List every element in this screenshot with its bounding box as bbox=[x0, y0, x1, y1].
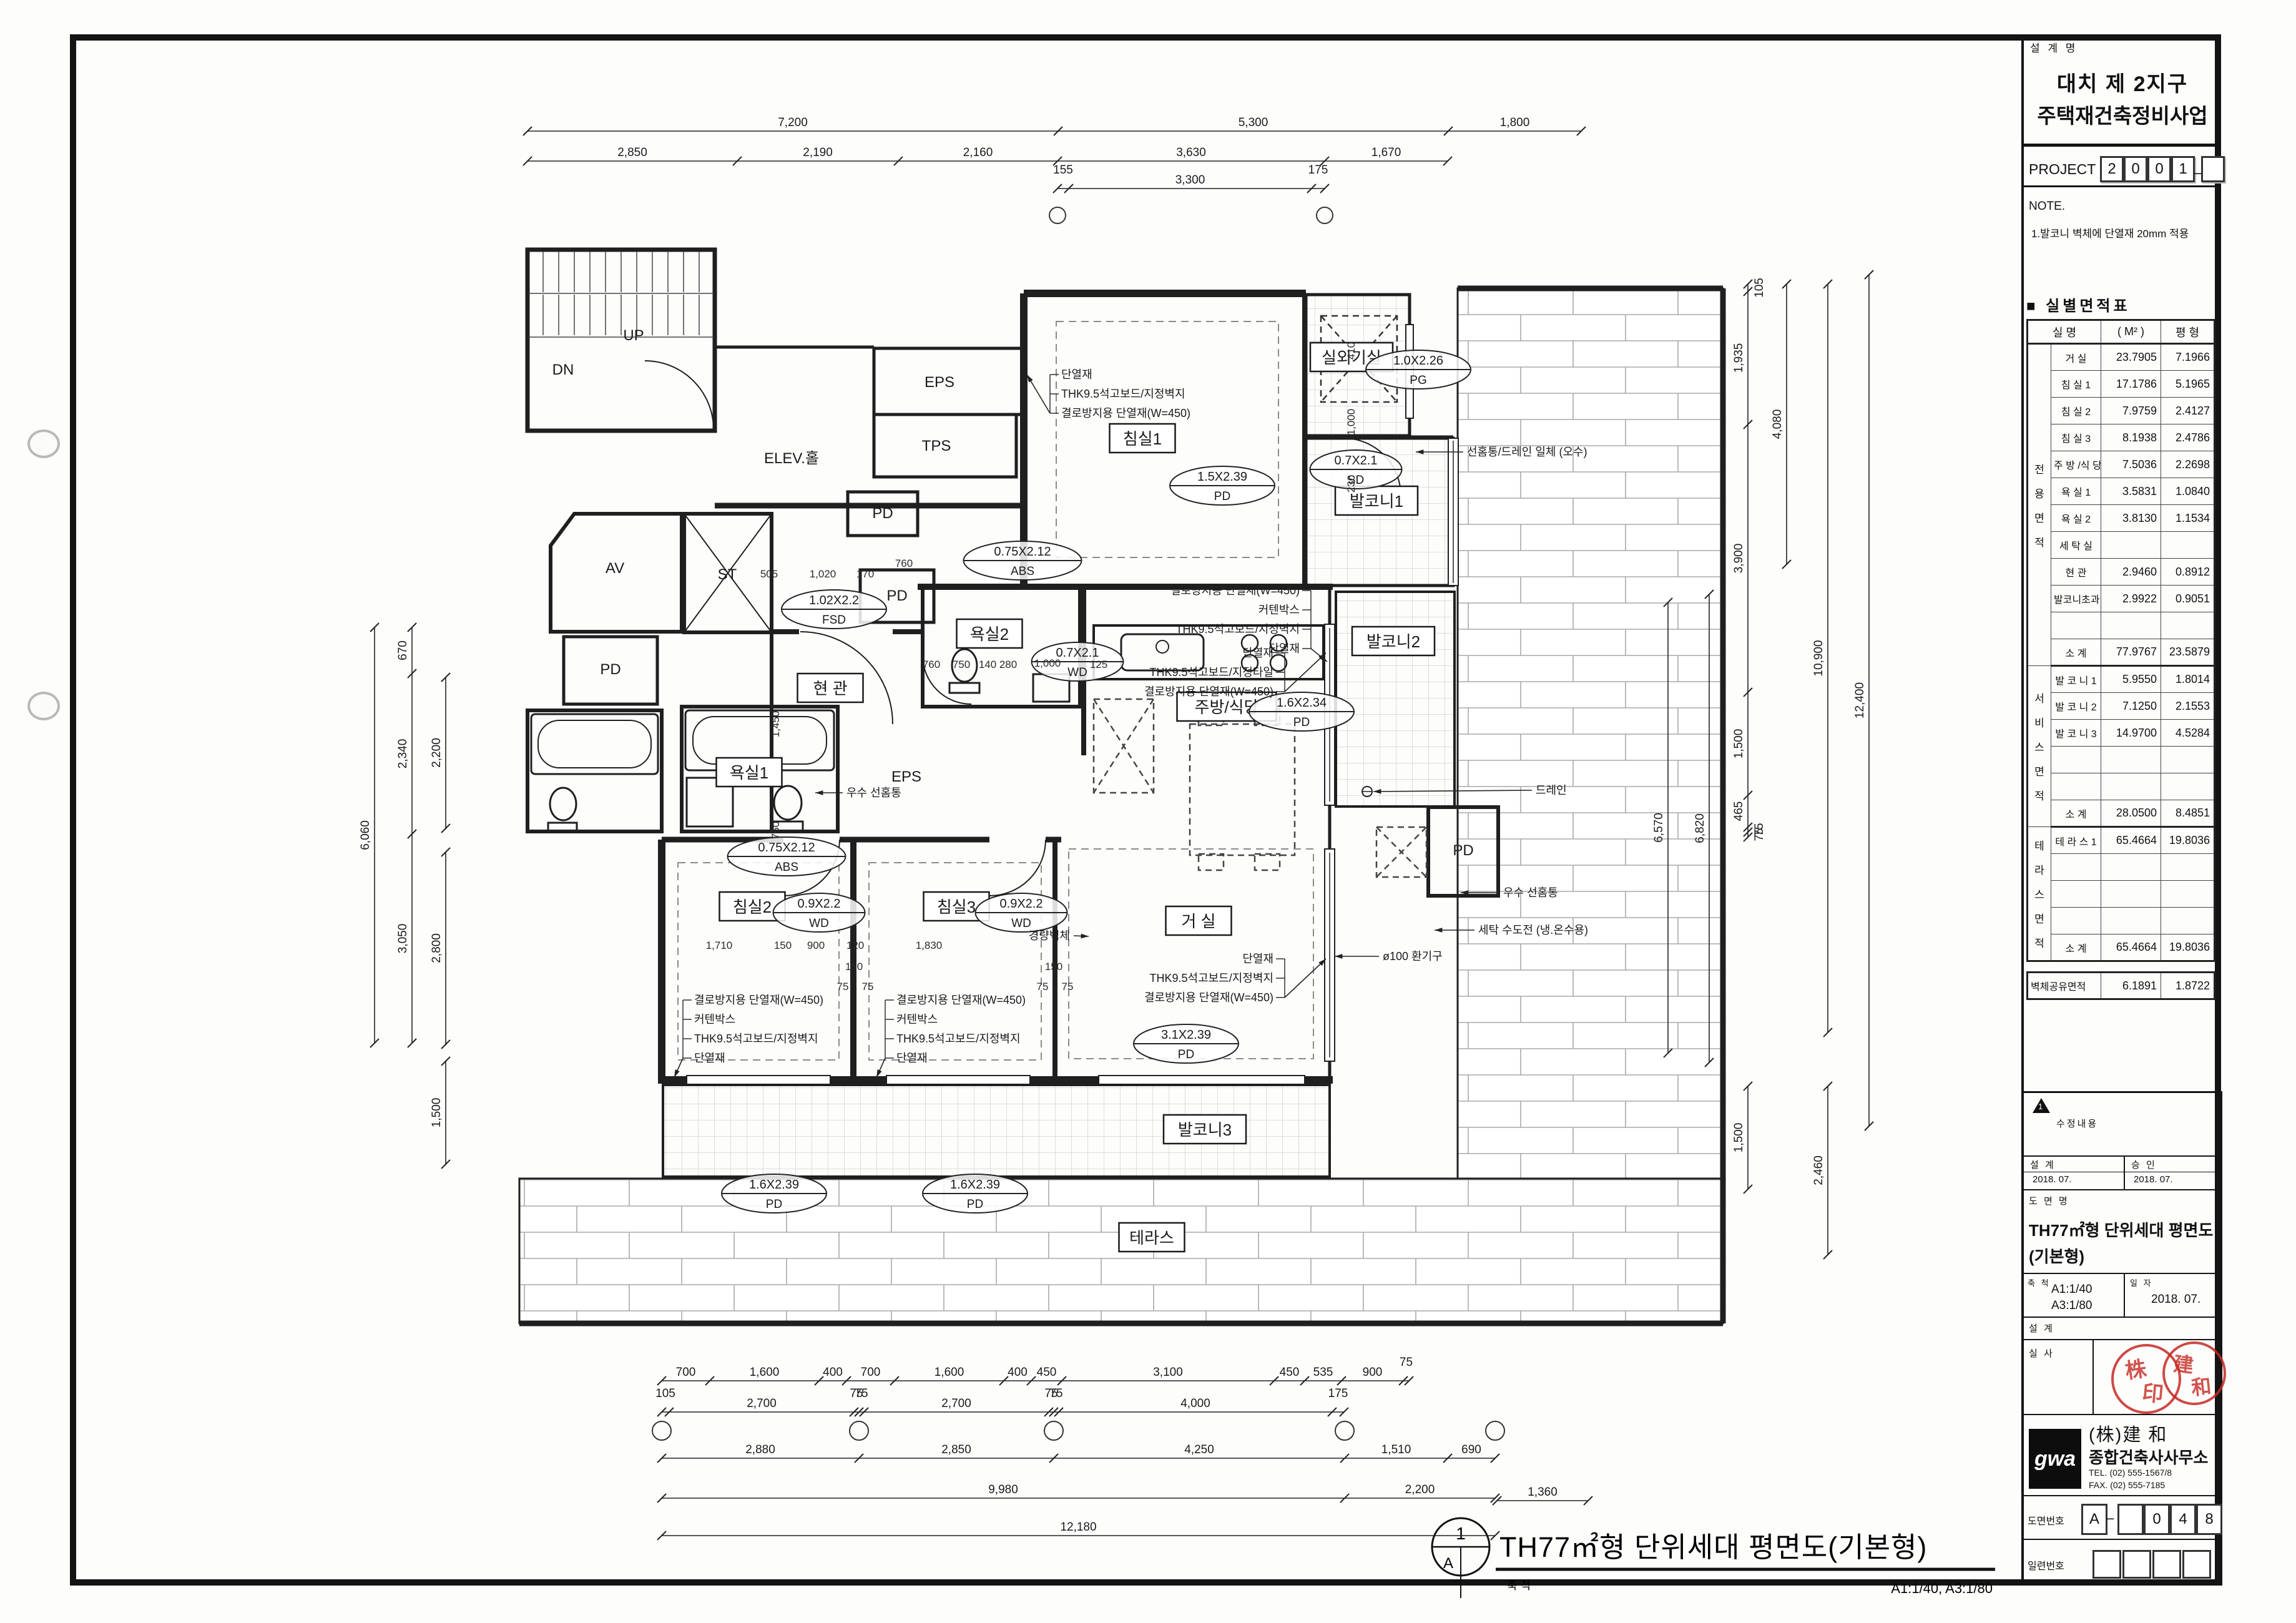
area-pyeong-cell: 0.9051 bbox=[2161, 586, 2215, 612]
scale-a3: A3:1/80 bbox=[2051, 1299, 2092, 1313]
area-m2-cell bbox=[2101, 532, 2161, 559]
dim-value: 1,500 bbox=[1732, 729, 1745, 759]
area-m2-cell: 7.5036 bbox=[2101, 451, 2161, 478]
opening-code: FSD bbox=[822, 614, 846, 627]
company-tel: TEL. (02) 555-1567/8 bbox=[2089, 1468, 2172, 1478]
dim-value: 4,080 bbox=[1771, 409, 1784, 439]
opening-size: 1.6X2.39 bbox=[950, 1178, 1000, 1192]
area-table-title: ■ 실별면적표 bbox=[2026, 293, 2217, 315]
company-logo: gwa bbox=[2029, 1429, 2081, 1489]
annotation-text: 결로방지용 단열재(W=450) bbox=[1144, 991, 1273, 1004]
dim-value: 12,400 bbox=[1853, 682, 1867, 718]
area-pyeong-cell: 1.0840 bbox=[2161, 478, 2215, 505]
dim-value: 450 bbox=[1037, 1366, 1057, 1379]
opening-code: PD bbox=[1214, 490, 1230, 503]
room-name-cell: 소 계 bbox=[2051, 800, 2101, 827]
scale-label: 축 척 bbox=[2028, 1277, 2051, 1288]
detail-number: 1 bbox=[1456, 1524, 1466, 1543]
wall-share-m2: 6.1891 bbox=[2101, 973, 2161, 999]
serial-digit bbox=[2122, 1550, 2151, 1579]
wall-share-pyeong: 1.8722 bbox=[2161, 973, 2215, 999]
opening-code: PD bbox=[967, 1198, 983, 1211]
area-m2-cell: 77.9767 bbox=[2101, 639, 2161, 666]
leader-line bbox=[1285, 959, 1326, 998]
dim-value: 5,300 bbox=[1239, 116, 1268, 129]
dim-value: 450 bbox=[1280, 1366, 1300, 1379]
wall-share-name: 벽체공유면적 bbox=[2028, 973, 2101, 999]
approval-date: 2018. 07. bbox=[2134, 1174, 2173, 1185]
area-m2-cell bbox=[2101, 612, 2161, 639]
dim-value: 670 bbox=[396, 640, 410, 660]
drawing-number-digit: 0 bbox=[2144, 1504, 2170, 1535]
dash: – bbox=[2106, 1510, 2114, 1526]
dim-value: 700 bbox=[676, 1366, 696, 1379]
dim-value: 1,800 bbox=[1500, 116, 1530, 129]
scale-date-row: 축 척 A1:1/40 A3:1/80 일 자 2018. 07. bbox=[2024, 1274, 2220, 1318]
annotation-text: 선홈통/드레인 일체 (오수) bbox=[1467, 446, 1587, 458]
inspection-row: 실 사 株 印 建 和 bbox=[2024, 1340, 2220, 1415]
room-name-cell bbox=[2051, 612, 2101, 639]
space-label: ST bbox=[718, 566, 737, 583]
area-m2-cell: 28.0500 bbox=[2101, 800, 2161, 827]
space-label: UP bbox=[623, 327, 644, 344]
dim-value: 3,300 bbox=[1175, 174, 1205, 187]
space-label: DN bbox=[552, 361, 574, 378]
leader-arrow bbox=[1081, 934, 1089, 939]
dim-value: 230 bbox=[1345, 475, 1357, 493]
project-digit: 2 bbox=[2100, 156, 2124, 182]
company-name-kr: 종합건축사사무소 bbox=[2089, 1445, 2208, 1468]
area-pyeong-cell: 2.1553 bbox=[2161, 693, 2215, 720]
dim-value: 750 bbox=[770, 821, 782, 839]
scale-value: A1:1/40, A3:1/80 bbox=[1891, 1581, 1993, 1596]
annotation-text: 커텐박스 bbox=[896, 1013, 938, 1026]
sheet-footer: 1 A TH77㎡형 단위세대 평면도(기본형) 축 척 A1:1/40, A3… bbox=[1432, 1518, 1995, 1598]
project-digit-empty bbox=[2201, 156, 2225, 182]
dim-value: 150 bbox=[845, 961, 863, 973]
drawing-number-digit: A bbox=[2081, 1504, 2107, 1535]
room-name-cell: 침 실 3 bbox=[2051, 424, 2101, 451]
dim-value: 125 bbox=[1090, 659, 1107, 670]
dim-value: 1,500 bbox=[430, 1098, 443, 1128]
col-header-m2: ( M² ) bbox=[2101, 320, 2161, 344]
dim-value: 2,700 bbox=[747, 1397, 777, 1410]
dim-value: 2,200 bbox=[1405, 1483, 1435, 1496]
revision-header: 수정내용 bbox=[2056, 1117, 2098, 1130]
opening-size: 1.6X2.39 bbox=[749, 1178, 799, 1192]
annotation-text: 단열재 bbox=[1061, 368, 1092, 381]
room-name-cell: 발 코 니 1 bbox=[2051, 666, 2101, 693]
area-m2-cell bbox=[2101, 747, 2161, 773]
dim-value: 1,450 bbox=[770, 711, 782, 738]
divider bbox=[2124, 1274, 2125, 1317]
area-m2-cell: 7.1250 bbox=[2101, 693, 2161, 720]
annotation-text: 결로방지용 단열재(W=450) bbox=[1170, 584, 1300, 597]
opening-size: 1.02X2.2 bbox=[809, 594, 859, 607]
project-digit: 1 bbox=[2171, 156, 2195, 182]
leader-arrow bbox=[1027, 375, 1033, 383]
opening-code: PD bbox=[766, 1198, 782, 1211]
opening-code: PD bbox=[1178, 1048, 1194, 1061]
approval-label: 승 인 bbox=[2131, 1158, 2157, 1171]
dim-value: 75 bbox=[862, 981, 874, 993]
design-row-label: 설 계 bbox=[2029, 1321, 2054, 1335]
dim-value: 150 bbox=[1045, 961, 1062, 973]
room-name-cell bbox=[2051, 908, 2101, 934]
room-name-cell bbox=[2051, 747, 2101, 773]
dim-value: 1,600 bbox=[935, 1366, 964, 1379]
room-label: 발코니2 bbox=[1366, 632, 1420, 651]
sign-row: 설 계 2018. 07. 승 인 2018. 07. bbox=[2024, 1157, 2220, 1190]
area-pyeong-cell: 1.8014 bbox=[2161, 666, 2215, 693]
scale-a1: A1:1/40 bbox=[2051, 1283, 2092, 1297]
company-name-cn: (株)建 和 bbox=[2089, 1420, 2167, 1446]
annotation-text: 커텐박스 bbox=[694, 1013, 735, 1026]
dim-value: 690 bbox=[1461, 1443, 1481, 1456]
wall-share-area-table: 벽체공유면적6.18911.8722 bbox=[2026, 971, 2214, 1000]
room-area-table: ■ 실별면적표 실 명( M² )평 형전용면적거 실23.79057.1966… bbox=[2026, 293, 2217, 962]
annotation-text: 커텐박스 bbox=[1258, 604, 1300, 616]
scale-label: 축 척 bbox=[1507, 1579, 1531, 1592]
annotation-text: 단열재 bbox=[694, 1052, 725, 1064]
space-label: EPS bbox=[925, 374, 954, 391]
opening-size: 1.0X2.26 bbox=[1393, 354, 1443, 368]
dim-value: 105 bbox=[1753, 278, 1766, 298]
area-m2-cell: 3.8130 bbox=[2101, 505, 2161, 532]
area-pyeong-cell: 8.4851 bbox=[2161, 800, 2215, 827]
dash: – bbox=[2194, 165, 2201, 181]
opening-size: 0.9X2.2 bbox=[1000, 897, 1043, 911]
dim-value: 4,250 bbox=[1184, 1443, 1214, 1456]
dim-value: 1,000 bbox=[1034, 657, 1061, 669]
company-fax: FAX. (02) 555-7185 bbox=[2089, 1480, 2165, 1490]
opening-size: 0.7X2.1 bbox=[1056, 646, 1099, 660]
annotation-text: THK9.5석고보드/지정벽지 bbox=[1061, 388, 1185, 400]
note-box: NOTE. 1.발코니 벽체에 단열재 20mm 적용 bbox=[2024, 189, 2221, 270]
dim-value: 2,700 bbox=[941, 1397, 971, 1410]
room-label: 침실2 bbox=[733, 898, 772, 916]
dim-value: 75 bbox=[1049, 1387, 1062, 1400]
title-block: 1 수정내용 설 계 2018. 07. 승 인 2018. 07. 도 면 명… bbox=[2021, 1091, 2222, 1586]
annotation-text: 결로방지용 단열재(W=450) bbox=[896, 994, 1026, 1006]
room-name-cell: 발코니초과면적 bbox=[2051, 586, 2101, 612]
opening-code: WD bbox=[1011, 917, 1031, 930]
drawing-number-digit: 4 bbox=[2170, 1504, 2196, 1535]
dim-value: 1,360 bbox=[1528, 1486, 1558, 1499]
dim-value: 4,000 bbox=[1180, 1397, 1210, 1410]
area-m2-cell bbox=[2101, 773, 2161, 800]
dim-value: 535 bbox=[1313, 1366, 1333, 1379]
room-label: 발코니1 bbox=[1350, 492, 1403, 511]
area-pyeong-cell bbox=[2161, 532, 2215, 559]
annotation-text: ø100 환기구 bbox=[1383, 950, 1443, 963]
divider bbox=[2024, 1172, 2220, 1172]
dim-value: 900 bbox=[807, 939, 825, 951]
floor-plan: 1 A TH77㎡형 단위세대 평면도(기본형) 축 척 A1:1/40, A3… bbox=[0, 0, 2296, 1623]
drawing-sheet: 1 A TH77㎡형 단위세대 평면도(기본형) 축 척 A1:1/40, A3… bbox=[0, 0, 2296, 1623]
company-box: gwa (株)建 和 종합건축사사무소 TEL. (02) 555-1567/8… bbox=[2024, 1415, 2220, 1496]
dim-value: 2,460 bbox=[1812, 1155, 1825, 1185]
area-pyeong-cell: 23.5879 bbox=[2161, 639, 2215, 666]
leader-arrow bbox=[1335, 954, 1342, 959]
area-m2-cell: 7.9759 bbox=[2101, 398, 2161, 424]
dim-value: 6,820 bbox=[1694, 813, 1707, 843]
annotation-text: THK9.5석고보드/지정벽지 bbox=[1175, 623, 1300, 635]
dim-value: 2,850 bbox=[941, 1443, 971, 1456]
dim-value: 9,980 bbox=[988, 1483, 1018, 1496]
room-name-cell: 현 관 bbox=[2051, 559, 2101, 586]
revision-mark: 1 bbox=[2038, 1102, 2043, 1111]
design-date: 2018. 07. bbox=[2033, 1174, 2072, 1185]
space-label: PD bbox=[600, 661, 621, 678]
col-header-pyeong: 평 형 bbox=[2161, 320, 2215, 344]
area-m2-cell: 2.9460 bbox=[2101, 559, 2161, 586]
note-text: 1.발코니 벽체에 단열재 20mm 적용 bbox=[2031, 225, 2189, 240]
leader-line bbox=[1285, 653, 1326, 692]
dim-value: 105 bbox=[655, 1387, 675, 1400]
dim-value: 3,050 bbox=[396, 924, 410, 954]
room-name-cell: 소 계 bbox=[2051, 934, 2101, 961]
dim-value: 1,600 bbox=[750, 1366, 780, 1379]
annotation-text: THK9.5석고보드/지정벽지 bbox=[694, 1032, 818, 1045]
room-name-cell: 침 실 2 bbox=[2051, 398, 2101, 424]
inspection-label: 실 사 bbox=[2029, 1346, 2054, 1360]
opening-size: 1.5X2.39 bbox=[1197, 470, 1247, 484]
area-m2-cell: 14.9700 bbox=[2101, 720, 2161, 747]
design-name-label: 설 계 명 bbox=[2030, 39, 2078, 55]
date-value: 2018. 07. bbox=[2151, 1293, 2200, 1307]
dim-value: 1,510 bbox=[1381, 1443, 1411, 1456]
dim-value: 900 bbox=[1363, 1366, 1383, 1379]
area-m2-cell bbox=[2101, 881, 2161, 908]
opening-size: 0.75X2.12 bbox=[994, 545, 1051, 559]
room-label: 침실1 bbox=[1123, 429, 1162, 448]
dim-value: 505 bbox=[760, 568, 778, 580]
room-name-cell: 거 실 bbox=[2051, 344, 2101, 371]
dim-value: 3,900 bbox=[1732, 544, 1745, 574]
opening-code: WD bbox=[809, 917, 829, 930]
area-pyeong-cell bbox=[2161, 612, 2215, 639]
space-label: AV bbox=[606, 560, 624, 577]
dim-value: 75 bbox=[1062, 981, 1074, 993]
dim-value: 760 bbox=[895, 557, 913, 569]
group-label: 테라스면적 bbox=[2028, 827, 2051, 961]
dim-value: 700 bbox=[861, 1366, 881, 1379]
area-pyeong-cell: 2.2698 bbox=[2161, 451, 2215, 478]
space-label: ELEV.홀 bbox=[764, 450, 819, 467]
dim-value: 6,060 bbox=[359, 820, 372, 850]
room-name-cell: 세 탁 실 bbox=[2051, 532, 2101, 559]
drawing-number-label: 도면번호 bbox=[2028, 1513, 2064, 1527]
dim-value: 170 bbox=[856, 568, 874, 580]
dim-value: 175 bbox=[1308, 164, 1328, 177]
leader-arrow bbox=[1435, 928, 1442, 933]
dim-value: 280 bbox=[999, 659, 1017, 670]
annotation-text: 단열재 bbox=[1242, 953, 1273, 965]
revision-box: 1 수정내용 bbox=[2024, 1093, 2220, 1157]
col-header-room: 실 명 bbox=[2028, 320, 2101, 344]
drawing-name-label: 도 면 명 bbox=[2029, 1194, 2069, 1207]
dim-value: 760 bbox=[923, 659, 940, 670]
detail-sheet-letter: A bbox=[1443, 1555, 1453, 1572]
dim-value: 75 bbox=[855, 1387, 868, 1400]
dim-value: 6,570 bbox=[1652, 813, 1666, 843]
dim-value: 1,710 bbox=[706, 939, 733, 951]
area-table: 실 명( M² )평 형전용면적거 실23.79057.1966침 실 117.… bbox=[2026, 319, 2215, 962]
area-m2-cell bbox=[2101, 854, 2161, 881]
area-m2-cell: 8.1938 bbox=[2101, 424, 2161, 451]
dim-value: 10,900 bbox=[1812, 640, 1825, 676]
project-title-box: 설 계 명 대치 제 2지구 주택재건축정비사업 bbox=[2024, 34, 2221, 147]
drawing-name-line1: TH77㎡형 단위세대 평면도 bbox=[2029, 1218, 2213, 1241]
opening-size: 0.75X2.12 bbox=[758, 841, 815, 855]
room-name-cell: 욕 실 1 bbox=[2051, 478, 2101, 505]
dim-value: 2,200 bbox=[430, 738, 443, 768]
annotation-text: THK9.5석고보드/지정벽지 bbox=[896, 1032, 1021, 1045]
opening-code: ABS bbox=[775, 861, 798, 874]
area-pyeong-cell bbox=[2161, 908, 2215, 934]
area-pyeong-cell bbox=[2161, 854, 2215, 881]
divider bbox=[2092, 1340, 2094, 1414]
drawing-name-line2: (기본형) bbox=[2029, 1244, 2084, 1267]
dim-value: 3,100 bbox=[1153, 1366, 1183, 1379]
drawing-title: TH77㎡형 단위세대 평면도(기본형) bbox=[1499, 1531, 1927, 1563]
dim-value: 1,670 bbox=[1371, 146, 1401, 159]
dim-value: 2,880 bbox=[745, 1443, 775, 1456]
dim-value: 7,200 bbox=[778, 116, 808, 129]
space-label: PD bbox=[872, 505, 893, 522]
drawing-number-digit: 8 bbox=[2196, 1504, 2222, 1535]
approval-stamp: 建 和 bbox=[2162, 1341, 2226, 1405]
room-name-cell bbox=[2051, 881, 2101, 908]
opening-size: 0.7X2.1 bbox=[1335, 454, 1378, 468]
wall-share-table: 벽체공유면적6.18911.8722 bbox=[2026, 971, 2215, 1000]
dim-value: 410 bbox=[1345, 342, 1357, 360]
annotation-text: 결로방지용 단열재(W=450) bbox=[1061, 407, 1190, 419]
annotation-text: 단열재 bbox=[896, 1052, 928, 1064]
dim-value: 2,340 bbox=[396, 739, 410, 769]
room-name-cell bbox=[2051, 773, 2101, 800]
drawing-number-row: 도면번호 A – 0 4 8 bbox=[2024, 1496, 2220, 1540]
dim-value: 150 bbox=[774, 939, 792, 951]
space-label: EPS bbox=[891, 768, 921, 785]
area-pyeong-cell: 19.8036 bbox=[2161, 827, 2215, 854]
area-m2-cell: 5.9550 bbox=[2101, 666, 2161, 693]
annotation-text: 경량벽체 bbox=[1029, 929, 1070, 942]
serial-number-label: 일련번호 bbox=[2028, 1557, 2064, 1572]
dim-value: 3,630 bbox=[1176, 146, 1206, 159]
dim-value: 140 bbox=[979, 659, 996, 670]
design-label: 설 계 bbox=[2030, 1158, 2056, 1171]
project-name-line1: 대치 제 2지구 bbox=[2024, 67, 2221, 97]
dim-value: 400 bbox=[823, 1366, 843, 1379]
area-pyeong-cell bbox=[2161, 881, 2215, 908]
dim-value: 2,850 bbox=[617, 146, 647, 159]
annotation-text: 결로방지용 단열재(W=450) bbox=[694, 994, 823, 1006]
area-pyeong-cell bbox=[2161, 773, 2215, 800]
dim-value: 1,020 bbox=[810, 568, 836, 580]
room-label: 침실3 bbox=[937, 898, 976, 916]
dim-value: 1,500 bbox=[1732, 1123, 1745, 1153]
room-name-cell: 발 코 니 3 bbox=[2051, 720, 2101, 747]
opening-code: WD bbox=[1067, 666, 1087, 679]
opening-size: 0.9X2.2 bbox=[798, 897, 841, 911]
area-pyeong-cell: 2.4786 bbox=[2161, 424, 2215, 451]
annotation-text: 우수 선홈통 bbox=[1503, 886, 1558, 899]
area-m2-cell: 17.1786 bbox=[2101, 371, 2161, 398]
area-pyeong-cell: 5.1965 bbox=[2161, 371, 2215, 398]
area-pyeong-cell: 0.8912 bbox=[2161, 559, 2215, 586]
project-digit: 0 bbox=[2124, 156, 2147, 182]
room-name-cell: 침 실 1 bbox=[2051, 371, 2101, 398]
room-label: 욕실1 bbox=[730, 763, 768, 782]
room-label: 현 관 bbox=[813, 679, 847, 698]
room-name-cell: 주 방 /식 당 bbox=[2051, 451, 2101, 478]
area-pyeong-cell: 1.1534 bbox=[2161, 505, 2215, 532]
drawing-number-digit bbox=[2117, 1504, 2144, 1535]
project-digit: 0 bbox=[2147, 156, 2171, 182]
area-pyeong-cell: 2.4127 bbox=[2161, 398, 2215, 424]
dim-value: 155 bbox=[1053, 164, 1073, 177]
project-name-line2: 주택재건축정비사업 bbox=[2024, 99, 2221, 129]
dim-value: 75 bbox=[1037, 981, 1049, 993]
area-m2-cell: 3.5831 bbox=[2101, 478, 2161, 505]
space-label: TPS bbox=[922, 438, 951, 454]
leader-arrow bbox=[815, 790, 823, 795]
opening-size: 1.6X2.34 bbox=[1277, 696, 1327, 710]
room-name-cell: 발 코 니 2 bbox=[2051, 693, 2101, 720]
annotation-text: 우수 선홈통 bbox=[846, 787, 901, 799]
opening-code: PG bbox=[1410, 374, 1426, 387]
dim-value: 1,935 bbox=[1732, 343, 1745, 373]
serial-digit bbox=[2152, 1550, 2181, 1579]
annotation-text: 드레인 bbox=[1536, 784, 1567, 797]
dim-value: 75 bbox=[1400, 1356, 1413, 1369]
opening-code: ABS bbox=[1011, 565, 1034, 578]
note-label: NOTE. bbox=[2029, 200, 2065, 213]
dim-value: 175 bbox=[1328, 1387, 1348, 1400]
annotation-text: THK9.5석고보드/지정타일 bbox=[1149, 666, 1273, 679]
room-label: 테라스 bbox=[1129, 1228, 1174, 1247]
dim-value: 120 bbox=[846, 939, 864, 951]
dim-value: 75 bbox=[1753, 828, 1766, 841]
annotation-text: THK9.5석고보드/지정벽지 bbox=[1149, 972, 1273, 984]
group-label: 서비스면적 bbox=[2028, 666, 2051, 827]
serial-digit bbox=[2092, 1550, 2121, 1579]
dim-value: 400 bbox=[1008, 1366, 1028, 1379]
date-label: 일 자 bbox=[2130, 1277, 2153, 1288]
drawing-name-box: 도 면 명 TH77㎡형 단위세대 평면도 (기본형) bbox=[2024, 1190, 2220, 1274]
dim-value: 12,180 bbox=[1060, 1521, 1096, 1534]
room-name-cell: 욕 실 2 bbox=[2051, 505, 2101, 532]
dim-value: 2,160 bbox=[963, 146, 993, 159]
opening-size: 3.1X2.39 bbox=[1161, 1028, 1211, 1042]
group-label: 전용면적 bbox=[2028, 344, 2051, 666]
area-pyeong-cell: 4.5284 bbox=[2161, 720, 2215, 747]
design-row: 설 계 bbox=[2024, 1318, 2220, 1340]
space-label: PD bbox=[1453, 842, 1473, 859]
area-m2-cell: 65.4664 bbox=[2101, 827, 2161, 854]
room-name-cell: 소 계 bbox=[2051, 639, 2101, 666]
dim-value: 1,000 bbox=[1345, 409, 1357, 436]
area-pyeong-cell: 19.8036 bbox=[2161, 934, 2215, 961]
room-label: 거 실 bbox=[1181, 912, 1215, 931]
dim-value: 2,800 bbox=[430, 933, 443, 963]
room-label: 발코니3 bbox=[1178, 1120, 1232, 1139]
serial-digit bbox=[2182, 1550, 2211, 1579]
annotation-text: 세탁 수도전 (냉.온수용) bbox=[1478, 924, 1588, 936]
dim-value: 465 bbox=[1732, 802, 1745, 821]
